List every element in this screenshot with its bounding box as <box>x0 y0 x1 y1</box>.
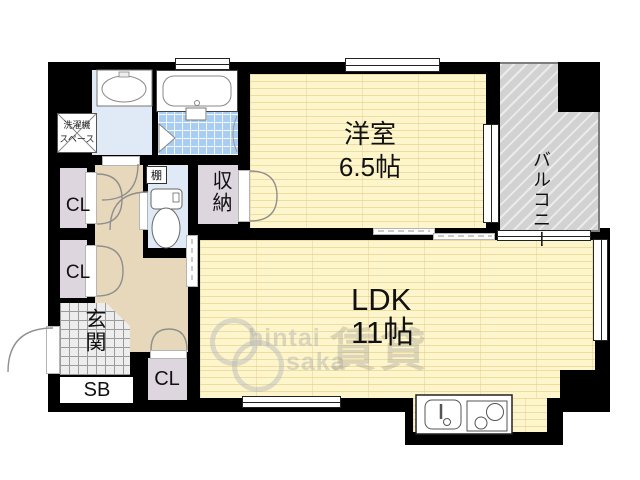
bathtub-icon <box>163 76 231 106</box>
shelf-label: 棚 <box>146 166 167 184</box>
door-arc <box>97 271 123 296</box>
storage-label: 収納 <box>206 170 235 214</box>
door-arc <box>97 246 123 271</box>
closet-hall-label: CL <box>146 366 188 392</box>
door-arc <box>250 196 277 221</box>
western-room-name: 洋室 <box>280 118 460 151</box>
door-arc <box>250 171 277 196</box>
stove-icon <box>467 401 507 431</box>
sliding-door-tracks <box>192 231 492 283</box>
western-room-area: 6.5帖 <box>280 151 460 184</box>
ldk-label: LDK 11帖 <box>351 283 414 350</box>
floor-plan: hintai saka 賃貸 <box>0 0 640 480</box>
washer-space-label: 洗濯機 スペース <box>57 119 97 146</box>
door-arc <box>8 328 53 372</box>
closet-upper-label: CL <box>58 194 98 218</box>
door-arcs <box>8 164 277 372</box>
door-arc <box>151 329 169 350</box>
entrance-label: 玄関 <box>79 308 109 354</box>
door-arc <box>169 329 187 350</box>
washer-space-line2: スペース <box>57 133 97 147</box>
door-arc <box>97 174 122 199</box>
kitchen-sink-icon <box>425 400 461 429</box>
ldk-name: LDK <box>351 283 414 316</box>
balcony-label: バルコニー <box>528 150 554 290</box>
kitchen-unit-icon <box>416 395 512 434</box>
washbasin-icon <box>97 70 152 106</box>
shoebox-label: SB <box>62 378 132 402</box>
western-room-label: 洋室 6.5帖 <box>280 118 460 183</box>
ldk-area: 11帖 <box>351 316 414 349</box>
bath-door-arrow-icon <box>159 124 175 152</box>
washer-space-line1: 洗濯機 <box>57 119 97 133</box>
toilet-icon <box>151 189 182 248</box>
bath-counter-icon <box>186 108 237 152</box>
closet-lower-label: CL <box>58 261 98 285</box>
